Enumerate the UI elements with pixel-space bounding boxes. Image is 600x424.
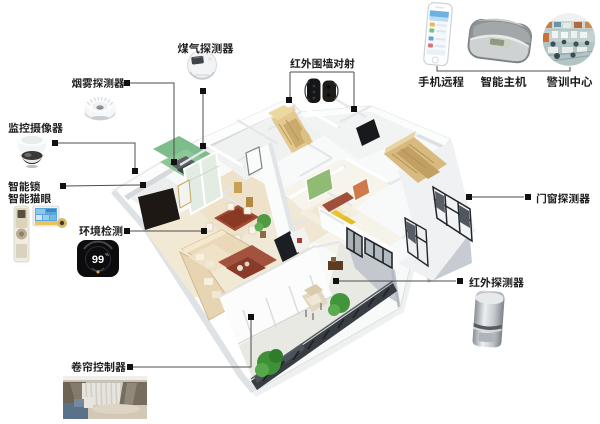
svg-text:%: % (105, 252, 109, 257)
svg-text:99: 99 (92, 254, 104, 266)
